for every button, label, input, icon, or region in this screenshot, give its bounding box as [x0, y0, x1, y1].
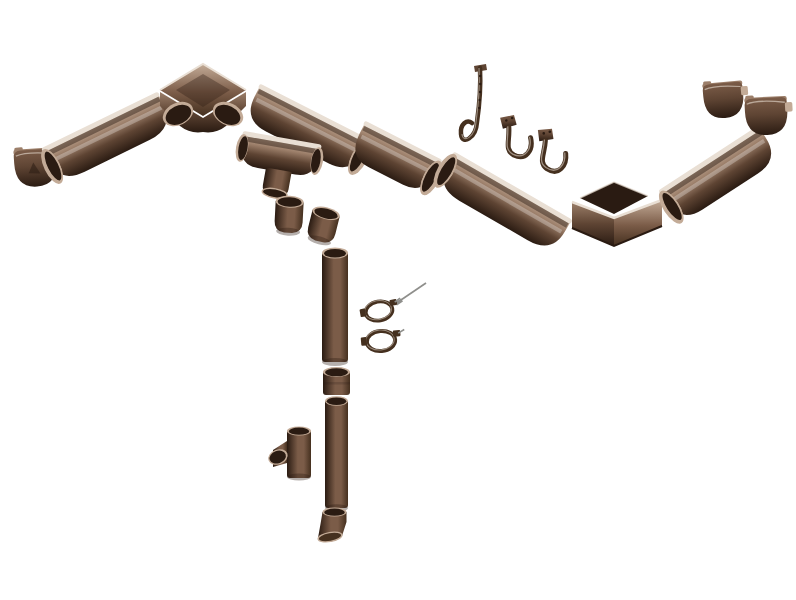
- downpipe-elbow-1: [274, 195, 304, 236]
- gutter-section-1: [36, 91, 176, 187]
- downpipe-upper: [322, 248, 348, 367]
- gutter-outside-corner: [572, 182, 662, 246]
- rafter-strap-hanger: [461, 64, 487, 140]
- pipe-clamp-1: [358, 297, 403, 324]
- downpipe-shoe: [317, 508, 346, 544]
- mounting-screw: [396, 283, 426, 304]
- pipe-coupler: [323, 367, 350, 395]
- downpipe-elbow-2: [305, 204, 341, 248]
- gutter-end-cap-right-2: [744, 93, 794, 136]
- downpipe-tee: [266, 427, 311, 481]
- pipe-clamp-2: [360, 328, 406, 353]
- downpipe-lower: [325, 396, 348, 512]
- gutter-section-4: [429, 149, 573, 255]
- gutter-hook-1: [500, 114, 532, 158]
- gutter-end-cap-right-1: [702, 78, 750, 120]
- gutter-hook-2: [536, 128, 567, 172]
- gutter-section-3: [347, 121, 448, 199]
- gutter-inside-corner: [159, 64, 247, 132]
- product-illustration: [0, 0, 796, 600]
- gutter-section-5: [653, 125, 780, 227]
- gutter-system-svg: [0, 0, 796, 600]
